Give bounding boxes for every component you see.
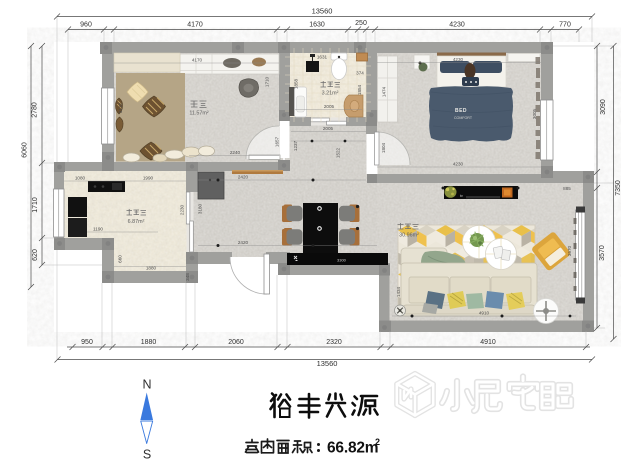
svg-text:2420: 2420: [238, 175, 249, 180]
svg-text:66.82m: 66.82m: [327, 440, 378, 457]
svg-text:2780: 2780: [32, 102, 39, 118]
svg-text:6060: 6060: [22, 142, 29, 158]
svg-text:2005: 2005: [324, 104, 335, 109]
svg-text:3180: 3180: [198, 203, 203, 214]
svg-text:3570: 3570: [567, 245, 572, 256]
svg-text:1080: 1080: [75, 176, 86, 181]
svg-text:1657: 1657: [275, 136, 280, 147]
svg-text:1710: 1710: [265, 76, 270, 87]
svg-text:3570: 3570: [599, 245, 606, 261]
svg-text:1880: 1880: [141, 339, 157, 346]
svg-text:250: 250: [355, 20, 367, 27]
svg-text:3005: 3005: [532, 108, 537, 119]
svg-text:tv: tv: [460, 194, 463, 198]
svg-text:1990: 1990: [143, 176, 154, 181]
svg-text:4230: 4230: [453, 57, 464, 62]
svg-text:3.21m²: 3.21m²: [322, 91, 339, 97]
svg-text:S: S: [143, 448, 151, 462]
svg-text:1522: 1522: [336, 147, 341, 158]
svg-text:2230: 2230: [180, 204, 185, 215]
svg-text:885: 885: [563, 186, 571, 191]
svg-text:11.57m²: 11.57m²: [189, 111, 209, 117]
svg-text:1804: 1804: [381, 142, 386, 153]
svg-text:30.96m²: 30.96m²: [399, 233, 419, 239]
svg-text:1434: 1434: [396, 286, 401, 297]
svg-text:2240: 2240: [230, 150, 241, 155]
svg-text:2005: 2005: [323, 126, 334, 131]
svg-text:N: N: [142, 378, 151, 392]
svg-text:3090: 3090: [600, 99, 607, 115]
svg-text:4170: 4170: [192, 58, 203, 63]
svg-text:1190: 1190: [93, 227, 103, 232]
svg-text:348: 348: [185, 273, 190, 281]
svg-text:2320: 2320: [326, 339, 342, 346]
svg-text:1631: 1631: [317, 55, 328, 60]
svg-text:3132: 3132: [118, 102, 123, 113]
svg-text:1880: 1880: [146, 266, 157, 271]
svg-text:7350: 7350: [615, 180, 622, 196]
svg-text:1630: 1630: [309, 22, 325, 29]
svg-text:4230: 4230: [453, 162, 464, 167]
svg-text:660: 660: [118, 255, 123, 263]
svg-text:3300: 3300: [337, 258, 347, 263]
svg-text:13560: 13560: [317, 359, 338, 368]
svg-text:1237: 1237: [293, 140, 298, 151]
svg-text:BED: BED: [455, 108, 467, 114]
svg-text:2060: 2060: [228, 339, 244, 346]
svg-text:1710: 1710: [32, 197, 39, 213]
svg-text:1854: 1854: [357, 84, 362, 95]
svg-text:4910: 4910: [479, 311, 490, 316]
svg-text:2: 2: [375, 437, 380, 447]
svg-text:1858: 1858: [294, 78, 299, 89]
svg-text:4170: 4170: [187, 22, 203, 29]
svg-text:374: 374: [356, 71, 364, 76]
svg-text:COMFORT: COMFORT: [454, 116, 473, 120]
svg-text:6.87m²: 6.87m²: [128, 219, 145, 225]
svg-text:960: 960: [80, 22, 92, 29]
svg-text:13560: 13560: [312, 7, 333, 16]
svg-text:950: 950: [81, 339, 93, 346]
svg-text:770: 770: [559, 22, 571, 29]
svg-text:4910: 4910: [480, 339, 496, 346]
svg-text:620: 620: [32, 249, 39, 261]
svg-text:4230: 4230: [449, 22, 465, 29]
svg-text:1474: 1474: [382, 86, 387, 97]
svg-text:2420: 2420: [238, 240, 249, 245]
